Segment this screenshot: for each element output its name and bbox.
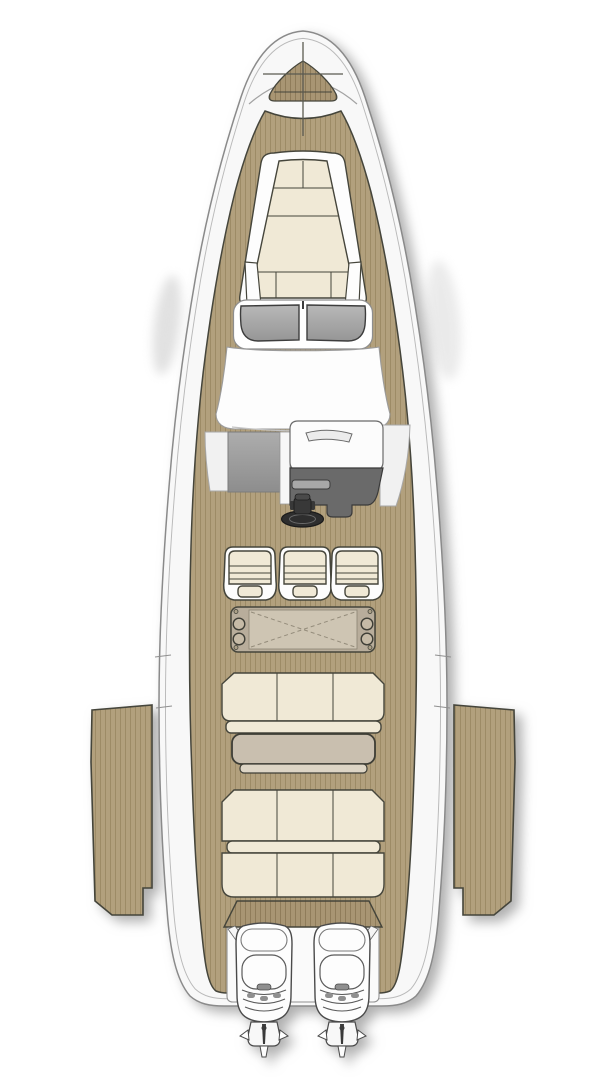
bench-seat: [222, 673, 384, 733]
windshield-glass-starboard: [307, 305, 366, 341]
ambient-shadow-right: [422, 259, 466, 382]
helm-seat-center: [279, 547, 332, 600]
cockpit-table: [232, 734, 375, 773]
port-engine: [236, 923, 292, 1057]
port-terrace: [91, 705, 152, 915]
ambient-shadow-left: [148, 274, 186, 376]
console-side-trim: [280, 432, 290, 504]
starboard-terrace: [454, 705, 515, 915]
helm-seat-port: [224, 547, 277, 600]
coaming-port: [205, 432, 228, 491]
wetbar-unit: [231, 607, 375, 652]
helm-seat-starboard: [331, 547, 384, 600]
boat-deck-plan: [0, 0, 607, 1080]
windshield-glass-port: [241, 305, 300, 341]
stern-walkway: [224, 901, 382, 927]
aft-sunpad: [222, 790, 384, 897]
deck-plan-canvas: [0, 0, 607, 1080]
copilot-seat: [290, 421, 383, 470]
boat: [91, 31, 515, 1057]
bow-sunpad: [240, 151, 367, 306]
companionway: [228, 432, 280, 492]
dashboard: [216, 347, 390, 429]
starboard-engine: [314, 923, 370, 1057]
console-footrest: [292, 480, 330, 489]
